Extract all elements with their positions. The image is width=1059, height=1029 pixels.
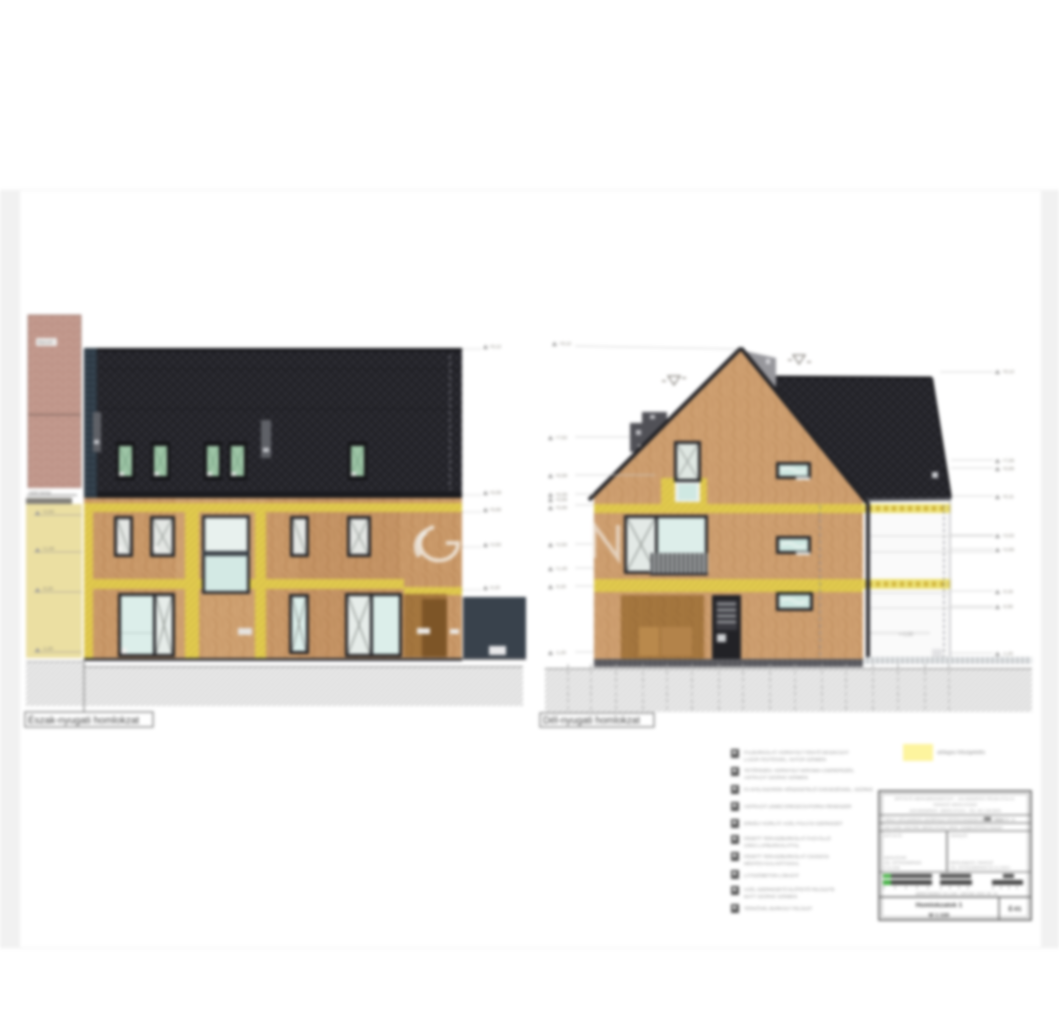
svg-text:ACÉL SZERKEZETŰ ELŐTETŐ FELÜLE: ACÉL SZERKEZETŰ ELŐTETŐ FELÜLETE — [744, 886, 835, 892]
svg-text:MINTA ANNA ÉV. TERVEZŐ: MINTA ANNA ÉV. TERVEZŐ — [950, 860, 993, 865]
svg-text:1023 BUDAPEST - MINTA UTCA 5.: 1023 BUDAPEST - MINTA UTCA 5. - TEL: 06 … — [909, 809, 1000, 813]
svg-text:-0,16: -0,16 — [1002, 589, 1013, 595]
svg-text:2024. 05. 10.: 2024. 05. 10. — [995, 818, 1016, 822]
svg-text:+1,40: +1,40 — [555, 566, 567, 572]
svg-text:-0,20: -0,20 — [555, 584, 566, 590]
svg-text:FA NYÍLÁSZÁRÓK HŐSZIGETELŐ ÜVE: FA NYÍLÁSZÁRÓK HŐSZIGETELŐ ÜVEGEZÉSSEL, … — [744, 786, 873, 792]
svg-text:MÉRETARÁNY: M 1:100 · DÁTUM:: MÉRETARÁNY: M 1:100 · DÁTUM: 2024. 05. 1… — [916, 891, 999, 896]
svg-text:Észak-nyugati homlokzat: Észak-nyugati homlokzat — [28, 714, 139, 727]
svg-text:HELYSZÍN: 2030 ÉRD, MINTA UTCA: HELYSZÍN: 2030 ÉRD, MINTA UTCA 8. HRSZ: … — [884, 825, 1004, 830]
svg-text:mért terep: mért terep — [29, 490, 51, 496]
svg-text:+7,62: +7,62 — [555, 435, 567, 441]
svg-text:MINTA PÉTER: MINTA PÉTER — [884, 855, 907, 860]
svg-text:-0,20: -0,20 — [489, 585, 500, 591]
svg-text:MENTES KIALAKÍTÁSSAL: MENTES KIALAKÍTÁSSAL — [744, 860, 800, 866]
svg-text:É-01: É-01 — [1008, 905, 1022, 913]
svg-text:+9,12: +9,12 — [489, 344, 501, 350]
svg-text:-1,20: -1,20 — [42, 646, 53, 652]
svg-text:+6,58: +6,58 — [555, 473, 567, 479]
svg-text:+8,12: +8,12 — [1002, 369, 1014, 375]
svg-text:ÉPÍTTETŐ: MINTA BERUHÁZÓ KFT.: ÉPÍTTETŐ: MINTA BERUHÁZÓ KFT. - 1111 BUD… — [895, 796, 1015, 801]
svg-text:ANTRACIT SZÜRKE SZÍNBEN: ANTRACIT SZÜRKE SZÍNBEN — [744, 774, 808, 780]
svg-text:-0,55: -0,55 — [1002, 604, 1013, 610]
svg-text:LÁTSZÓBETON LÁBAZAT: LÁTSZÓBETON LÁBAZAT — [744, 872, 799, 878]
svg-text:lépcső: lépcső — [38, 340, 53, 346]
svg-text:+2,82: +2,82 — [489, 542, 501, 548]
svg-text:+5,66: +5,66 — [555, 505, 567, 511]
svg-text:OKL. ÉPÍTÉSZMÉRNÖK É/1 01-2345: OKL. ÉPÍTÉSZMÉRNÖK É/1 01-2345 K — [950, 865, 1011, 870]
svg-text:TERVEZŐ: MINTA STÚDIÓ: TERVEZŐ: MINTA STÚDIÓ — [933, 802, 977, 807]
svg-text:+6,86: +6,86 — [1002, 466, 1014, 472]
svg-text:-1,20: -1,20 — [1002, 651, 1013, 657]
svg-text:TETŐFEDÉS: HORNYOLT KERÁMIA CS: TETŐFEDÉS: HORNYOLT KERÁMIA CSEREPEZÉS, — [744, 767, 854, 773]
svg-text:ANTRACIT LEMEZ ERESZCSATORNA R: ANTRACIT LEMEZ ERESZCSATORNA RENDSZER — [744, 804, 852, 809]
svg-text:+9,12: +9,12 — [559, 341, 571, 347]
svg-text:Homlokzatok 1: Homlokzatok 1 — [916, 902, 963, 909]
svg-text:FEDETT TERASZBURKOLAT FAGYÁLLÓ: FEDETT TERASZBURKOLAT FAGYÁLLÓ — [744, 835, 831, 841]
svg-text:M 1:100: M 1:100 — [929, 913, 950, 919]
svg-text:MATT SZÜRKE SZÍNBEN: MATT SZÜRKE SZÍNBEN — [744, 893, 797, 899]
svg-text:ÉPÍTTETŐ:: ÉPÍTTETŐ: — [884, 833, 903, 838]
svg-text:ERKÉLY KORLÁT: ACÉL PÁLCÁS SZE: ERKÉLY KORLÁT: ACÉL PÁLCÁS SZERKEZET — [744, 820, 843, 826]
svg-text:LAZÚR FESTÉSSEL, NATÚR SZÍNBEN: LAZÚR FESTÉSSEL, NATÚR SZÍNBEN — [744, 756, 826, 762]
svg-text:GRES LAPBURKOLATTAL: GRES LAPBURKOLATTAL — [744, 843, 800, 848]
svg-text:-0,20: -0,20 — [42, 586, 53, 592]
svg-text:FALBURKOLAT: HORNYOLT FENYŐ DE: FALBURKOLAT: HORNYOLT FENYŐ DESZKÁZAT — [744, 749, 849, 755]
svg-text:+2,82: +2,82 — [42, 509, 54, 515]
svg-text:utólagos hőszigetelés: utólagos hőszigetelés — [937, 750, 986, 756]
svg-text:+2,66: +2,66 — [1002, 547, 1014, 553]
svg-text:TERVEZŐ:: TERVEZŐ: — [950, 833, 968, 838]
svg-text:Dél-nyugati homlokzat: Dél-nyugati homlokzat — [543, 716, 640, 727]
svg-text:-1,20: -1,20 — [555, 650, 566, 656]
svg-text:+5,86: +5,86 — [555, 497, 567, 503]
svg-text:TÉRKŐVEL BURKOLT FELÜLET: TÉRKŐVEL BURKOLT FELÜLET — [744, 905, 813, 911]
svg-text:+1,40: +1,40 — [42, 546, 54, 552]
svg-text:OKL. ÉPÍTÉSZMÉRNÖK: OKL. ÉPÍTÉSZMÉRNÖK — [884, 860, 922, 865]
svg-text:+5,66: +5,66 — [489, 507, 501, 513]
svg-text:É 01-2345: É 01-2345 — [884, 865, 900, 870]
svg-text:+2,82: +2,82 — [555, 542, 567, 548]
svg-text:FEDETT TERASZBURKOLAT CSÚSZÁS-: FEDETT TERASZBURKOLAT CSÚSZÁS- — [744, 853, 830, 859]
svg-text:+6,11: +6,11 — [1002, 494, 1014, 500]
svg-text:+6,08: +6,08 — [489, 490, 501, 496]
svg-text:+3,02: +3,02 — [1002, 533, 1014, 539]
svg-text:+7,06: +7,06 — [1002, 458, 1014, 464]
